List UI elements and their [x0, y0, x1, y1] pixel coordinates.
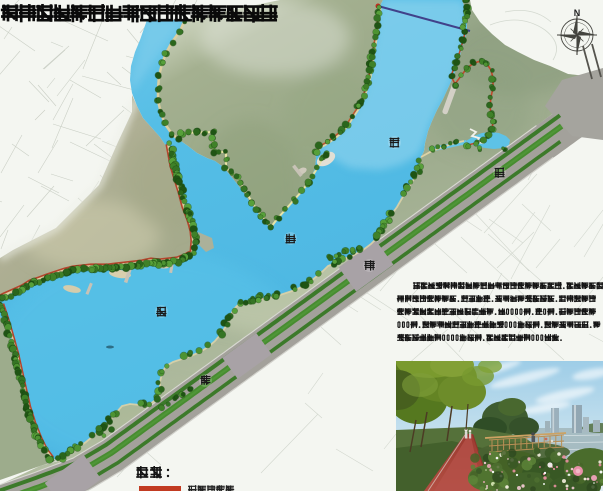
svg-text:N: N [574, 8, 581, 18]
